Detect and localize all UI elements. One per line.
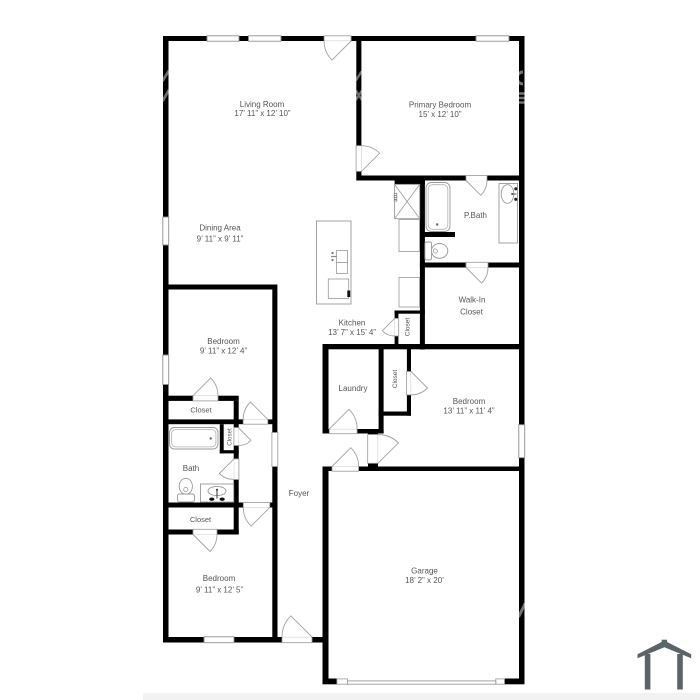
svg-text:15’ x 12’ 10”: 15’ x 12’ 10”	[419, 110, 462, 119]
svg-text:Living Room: Living Room	[240, 100, 285, 109]
svg-text:Bedroom: Bedroom	[207, 337, 240, 346]
svg-text:9’ 11” x 12’ 5”: 9’ 11” x 12’ 5”	[196, 586, 244, 595]
svg-text:Bedroom: Bedroom	[453, 397, 486, 406]
svg-text:Garage: Garage	[411, 567, 438, 576]
svg-text:18’ 2” x 20’: 18’ 2” x 20’	[405, 576, 444, 585]
svg-text:13’ 7” x 15’ 4”: 13’ 7” x 15’ 4”	[328, 328, 376, 337]
svg-text:Closet: Closet	[460, 308, 483, 317]
svg-text:Closet: Closet	[405, 318, 412, 337]
svg-text:Closet: Closet	[190, 515, 212, 524]
svg-text:Closet: Closet	[392, 370, 399, 389]
svg-text:Foyer: Foyer	[289, 489, 310, 498]
svg-text:P.Bath: P.Bath	[464, 211, 487, 220]
svg-text:Dining Area: Dining Area	[199, 224, 241, 233]
svg-text:9’ 11” x 9’ 11”: 9’ 11” x 9’ 11”	[197, 235, 244, 244]
svg-text:Kitchen: Kitchen	[339, 318, 366, 327]
svg-text:Walk-In: Walk-In	[459, 296, 486, 305]
svg-text:Bedroom: Bedroom	[203, 574, 236, 583]
svg-text:Bath: Bath	[183, 464, 199, 473]
svg-text:17’ 11” x 12’ 10”: 17’ 11” x 12’ 10”	[234, 109, 291, 118]
svg-text:Closet: Closet	[190, 406, 212, 415]
svg-text:9’ 11” x 12’ 4”: 9’ 11” x 12’ 4”	[200, 346, 248, 355]
svg-text:Laundry: Laundry	[339, 384, 368, 393]
svg-text:Primary Bedroom: Primary Bedroom	[409, 101, 472, 110]
svg-text:Closet: Closet	[226, 428, 233, 446]
svg-text:13’ 11” x 11’ 4”: 13’ 11” x 11’ 4”	[443, 407, 494, 416]
